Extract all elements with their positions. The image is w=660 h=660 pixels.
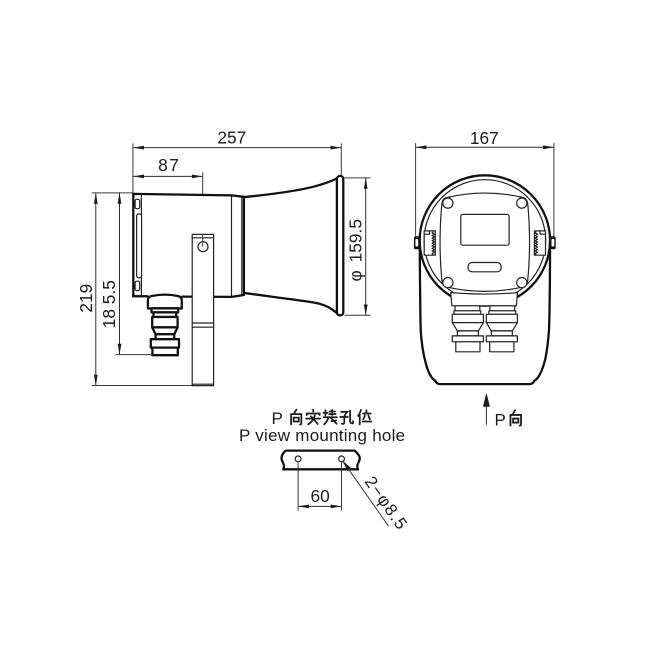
- svg-text:P view mounting hole: P view mounting hole: [239, 426, 405, 445]
- svg-text:P: P: [495, 411, 506, 430]
- svg-text:60: 60: [310, 486, 329, 506]
- svg-text:18 5.5: 18 5.5: [99, 280, 119, 328]
- svg-text:257: 257: [217, 128, 246, 148]
- svg-text:219: 219: [76, 284, 96, 313]
- svg-text:87: 87: [158, 155, 180, 175]
- svg-text:φ159.5: φ159.5: [345, 219, 365, 281]
- svg-text:167: 167: [470, 128, 499, 148]
